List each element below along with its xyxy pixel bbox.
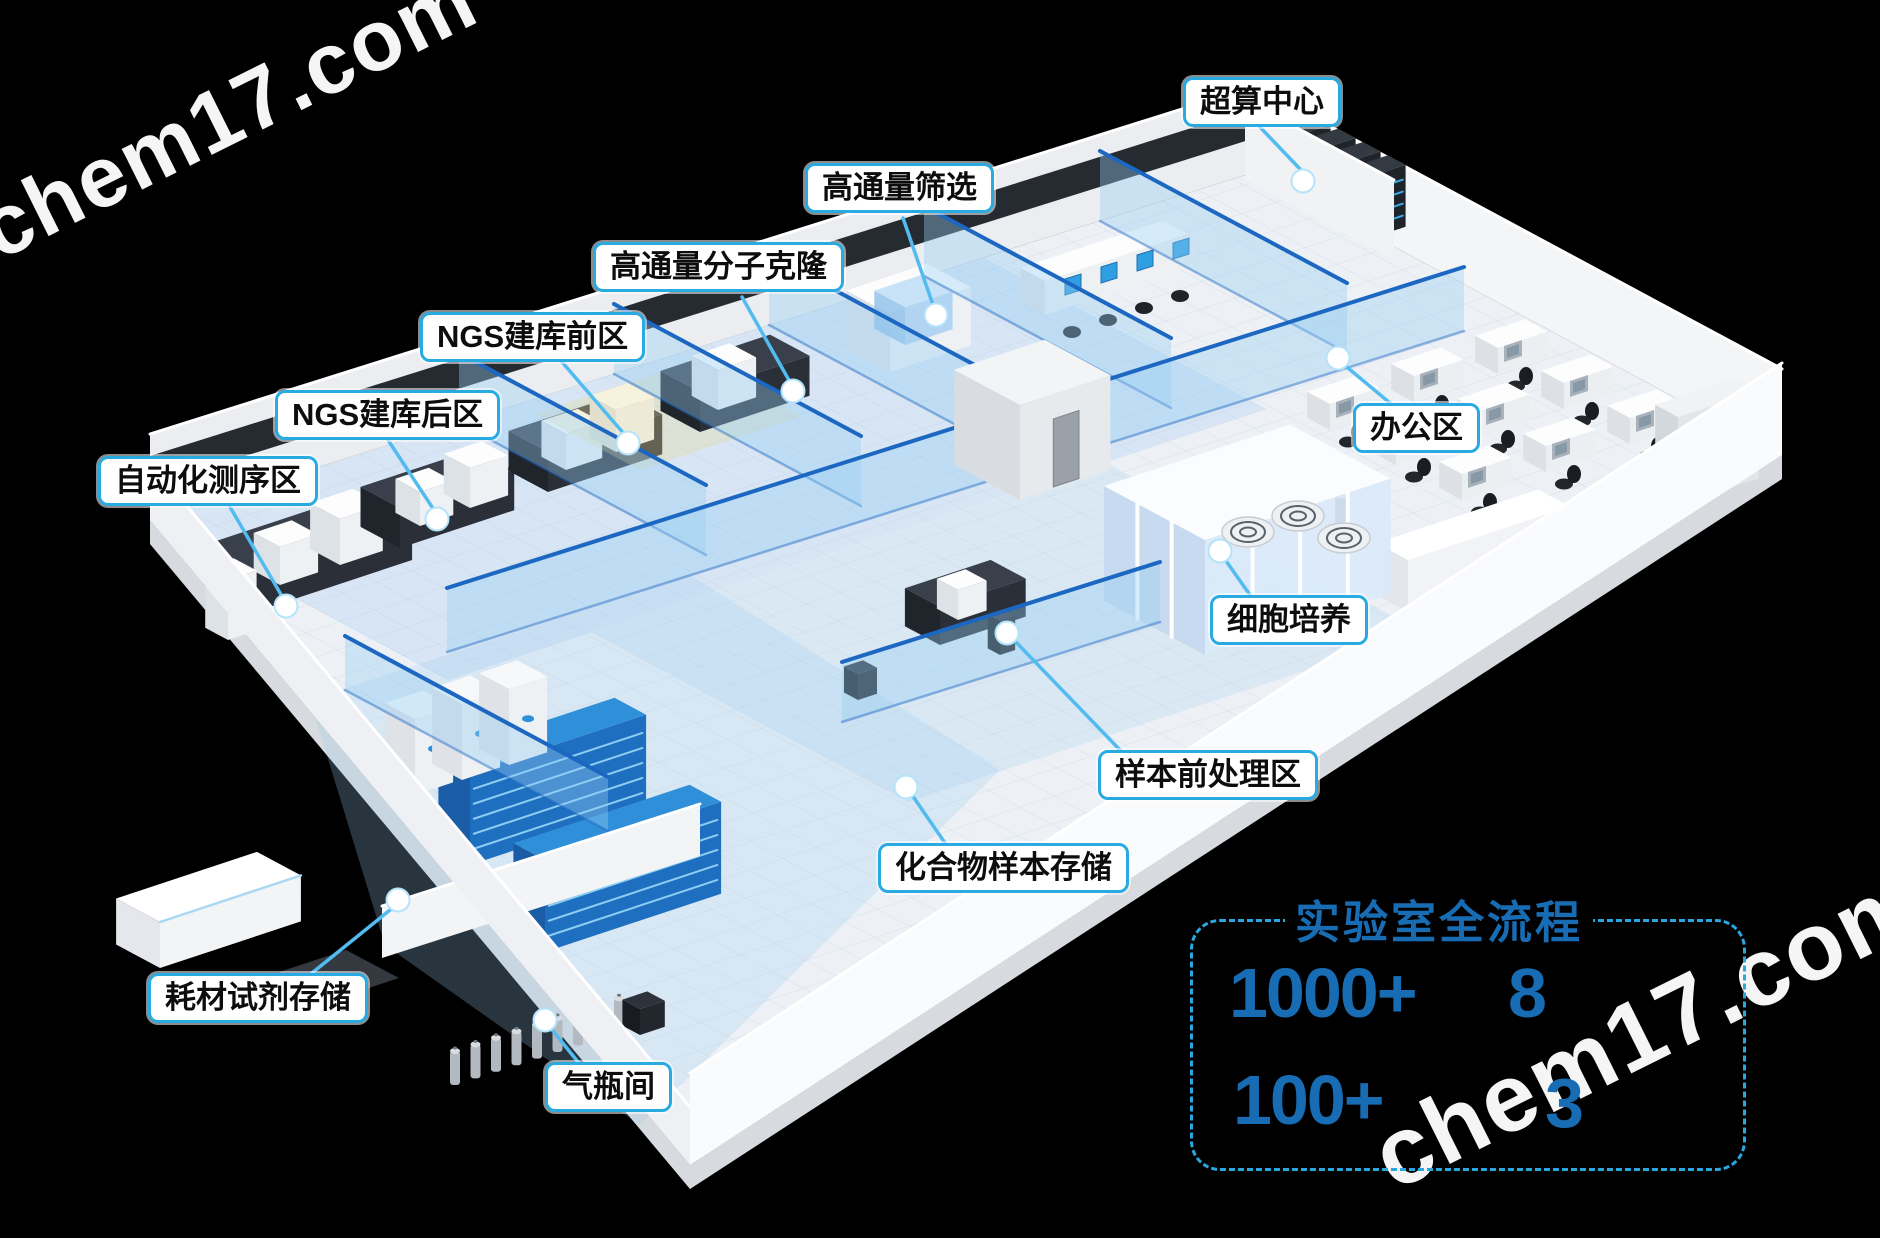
office-chair-back: [1519, 367, 1533, 385]
leader-dot-high-throughput-screening: [925, 304, 948, 327]
conference-chair: [1135, 302, 1153, 314]
room-label-supercomputing-center: 超算中心: [1183, 77, 1341, 127]
gas-cylinder: [491, 1038, 501, 1072]
gas-cylinder-valve: [515, 1027, 519, 1030]
room-label-gas-cylinder-room: 气瓶间: [545, 1062, 672, 1112]
room-label-consumables-reagent-storage: 耗材试剂存储: [148, 973, 368, 1023]
gas-cylinder: [450, 1051, 460, 1085]
stats-panel: 实验室全流程 1000+ 8 100+ 3: [1190, 919, 1746, 1171]
freezer-logo: [522, 715, 534, 722]
room-label-ngs-library-prep-front: NGS建库前区: [420, 312, 645, 362]
stats-panel-title: 实验室全流程: [1285, 886, 1593, 951]
leader-dot-ngs-library-prep-back: [426, 508, 449, 531]
leader-dot-office-area: [1327, 347, 1350, 370]
stat-value-4: 3: [1545, 1068, 1582, 1138]
gas-cylinder-valve: [494, 1033, 498, 1036]
gas-cylinder-valve: [617, 994, 621, 997]
gas-cylinder: [471, 1044, 481, 1078]
leader-dot-consumables-reagent-storage: [387, 889, 410, 912]
stat-value-2: 8: [1508, 958, 1545, 1028]
stat-value-3: 100+: [1233, 1065, 1383, 1135]
room-label-office-area: 办公区: [1353, 403, 1480, 453]
room-label-compound-sample-storage: 化合物样本存储: [878, 843, 1129, 893]
room-label-cell-culture: 细胞培养: [1210, 595, 1368, 645]
room-label-high-throughput-screening: 高通量筛选: [805, 163, 994, 213]
gas-cylinder: [512, 1031, 522, 1065]
room-door: [1053, 411, 1079, 488]
office-chair-back: [1417, 458, 1431, 476]
leader-dot-compound-sample-storage: [895, 776, 918, 799]
leader-dot-ngs-library-prep-front: [617, 432, 640, 455]
leader-dot-gas-cylinder-room: [534, 1009, 557, 1032]
conference-chair: [1171, 290, 1189, 302]
gas-cylinder-valve: [453, 1047, 457, 1050]
leader-dot-supercomputing-center: [1292, 170, 1315, 193]
leader-dot-high-throughput-molecular-cloning: [782, 380, 805, 403]
room-label-automated-sequencing: 自动化测序区: [98, 456, 318, 506]
leader-dot-automated-sequencing: [275, 595, 298, 618]
office-chair-back: [1501, 430, 1515, 448]
lab-floorplan-diagram: chem17.com chem17.com 超算中心 高通量筛选 高通量分子克隆…: [0, 0, 1880, 1238]
office-chair-back: [1567, 465, 1581, 483]
gas-cylinder-valve: [474, 1040, 478, 1043]
leader-dot-cell-culture: [1209, 540, 1232, 563]
room-label-high-throughput-molecular-cloning: 高通量分子克隆: [593, 242, 844, 292]
room-label-sample-pretreatment: 样本前处理区: [1098, 750, 1318, 800]
leader-dot-sample-pretreatment: [996, 622, 1019, 645]
room-label-ngs-library-prep-back: NGS建库后区: [275, 390, 500, 440]
stat-value-1: 1000+: [1229, 958, 1416, 1028]
office-chair-back: [1585, 402, 1599, 420]
